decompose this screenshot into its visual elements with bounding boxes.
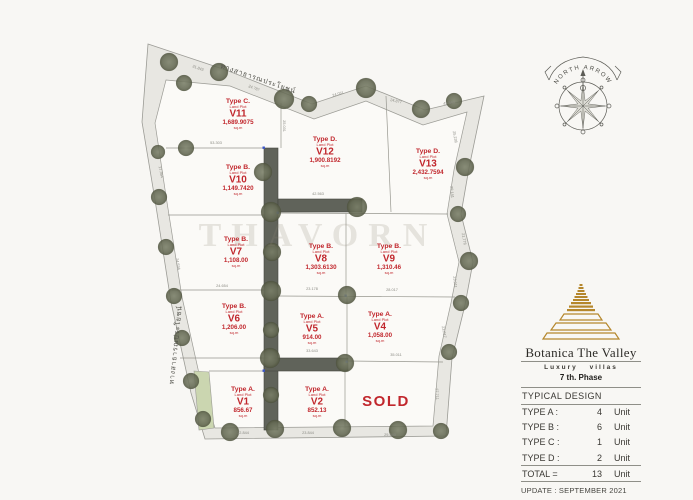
compass-rose-icon: NORTH ARROW: [545, 57, 621, 134]
legend-row-type-c: TYPE C :1Unit: [521, 435, 641, 450]
plot-label-v8: Type B.Land PlotV81,303.6130sq.m: [305, 243, 336, 276]
legend-row-type-d: TYPE D :2Unit: [521, 450, 641, 465]
plot-label-v9: Type B.Land PlotV91,310.46sq.m: [377, 243, 401, 276]
plot-label-v13: Type D.Land PlotV132,432.7594sq.m: [412, 148, 443, 181]
dimension-label: 25.031: [282, 120, 286, 132]
dimension-label: 27.711: [435, 388, 440, 400]
brand-logo-icon: [521, 283, 641, 345]
dimension-label: 42.563: [312, 192, 324, 196]
legend-row-type-b: TYPE B :6Unit: [521, 420, 641, 435]
update-date: UPDATE : SEPTEMBER 2021: [521, 482, 641, 495]
dimension-label: 12.844: [237, 431, 249, 435]
dimension-label: 29.540: [384, 433, 396, 437]
legend-row-type-a: TYPE A :4Unit: [521, 405, 641, 420]
plot-label-v11: Type C.Land PlotV111,689.9075sq.m: [222, 98, 253, 131]
plot-label-v10: Type B.Land PlotV101,149.7420sq.m: [222, 164, 253, 197]
legend-section-title: TYPICAL DESIGN: [521, 388, 641, 404]
site-plan-page: NORTH ARROW THAVORN ทางสาธารณประโยชน์ ทา…: [0, 0, 693, 500]
dimension-label: 35.011: [390, 353, 401, 357]
plot-label-v4: Type A.Land PlotV41,058.00sq.m: [368, 311, 392, 344]
plot-label-v12: Type D.Land PlotV121,900.8192sq.m: [309, 136, 340, 169]
plot-label-v5: Type A.Land PlotV5914.00sq.m: [300, 313, 324, 346]
dimension-label: 33.643: [306, 349, 318, 353]
sold-label: SOLD: [362, 393, 410, 410]
plot-label-v1: Type A.Land PlotV1856.67sq.m: [231, 386, 255, 419]
dimension-label: 53.303: [210, 141, 222, 145]
dimension-label: 24.654: [216, 284, 228, 288]
dimension-label: 23.844: [302, 431, 314, 435]
brand-tagline: Luxury villas: [521, 362, 641, 372]
legend-panel: Botanica The Valley Luxury villas 7 th. …: [521, 283, 641, 495]
plot-label-v2: Type A.Land PlotV2852.13sq.m: [305, 386, 329, 419]
phase-label: 7 th. Phase: [521, 372, 641, 387]
dimension-label: 23.178: [306, 287, 318, 291]
plot-label-v6: Type B.Land PlotV61,206.00sq.m: [222, 303, 246, 336]
brand-name: Botanica The Valley: [521, 345, 641, 361]
dimension-label: 23.011: [452, 276, 457, 288]
legend-row-total: TOTAL =13Unit: [521, 466, 641, 481]
dimension-label: 29.141: [449, 186, 454, 198]
dimension-label: 28.017: [386, 288, 398, 292]
plot-label-v7: Type B.Land PlotV71,108.00sq.m: [224, 236, 248, 269]
